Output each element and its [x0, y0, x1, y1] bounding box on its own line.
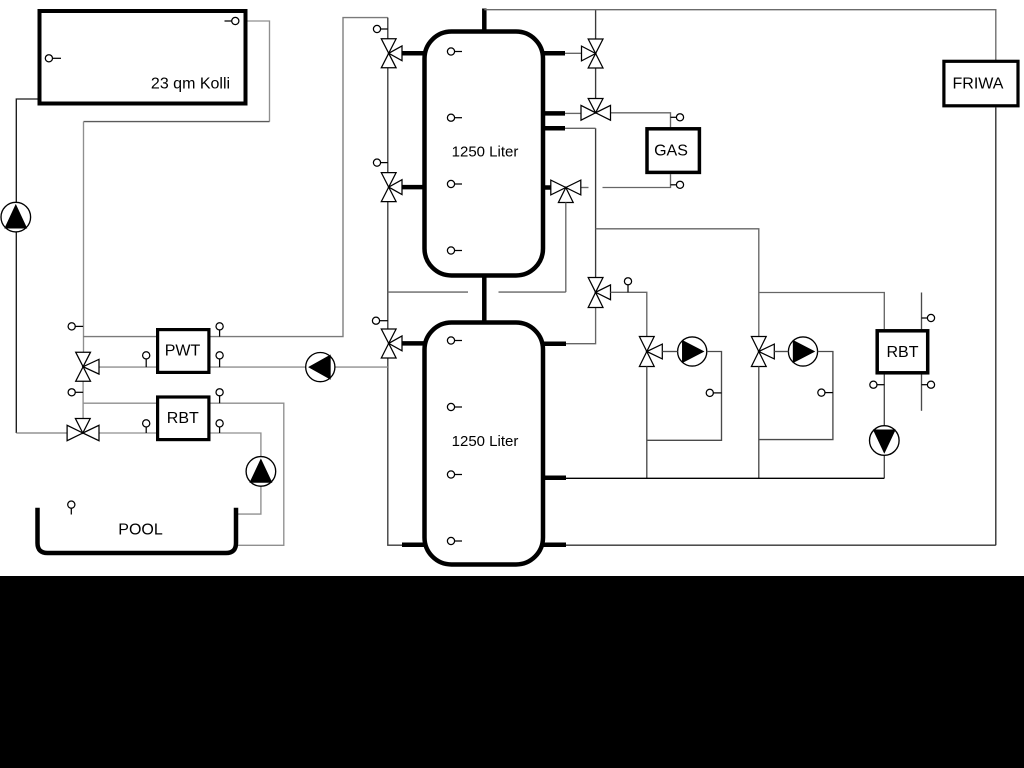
svg-text:FRIWA: FRIWA [953, 76, 1004, 93]
svg-text:23 qm Kolli: 23 qm Kolli [151, 75, 230, 92]
svg-text:1250 Liter: 1250 Liter [452, 433, 519, 450]
svg-text:PWT: PWT [165, 343, 201, 360]
svg-text:RBT: RBT [167, 410, 199, 427]
svg-text:POOL: POOL [118, 522, 163, 539]
svg-text:1250 Liter: 1250 Liter [452, 144, 519, 161]
svg-text:RBT: RBT [887, 344, 919, 361]
svg-text:GAS: GAS [654, 143, 688, 160]
